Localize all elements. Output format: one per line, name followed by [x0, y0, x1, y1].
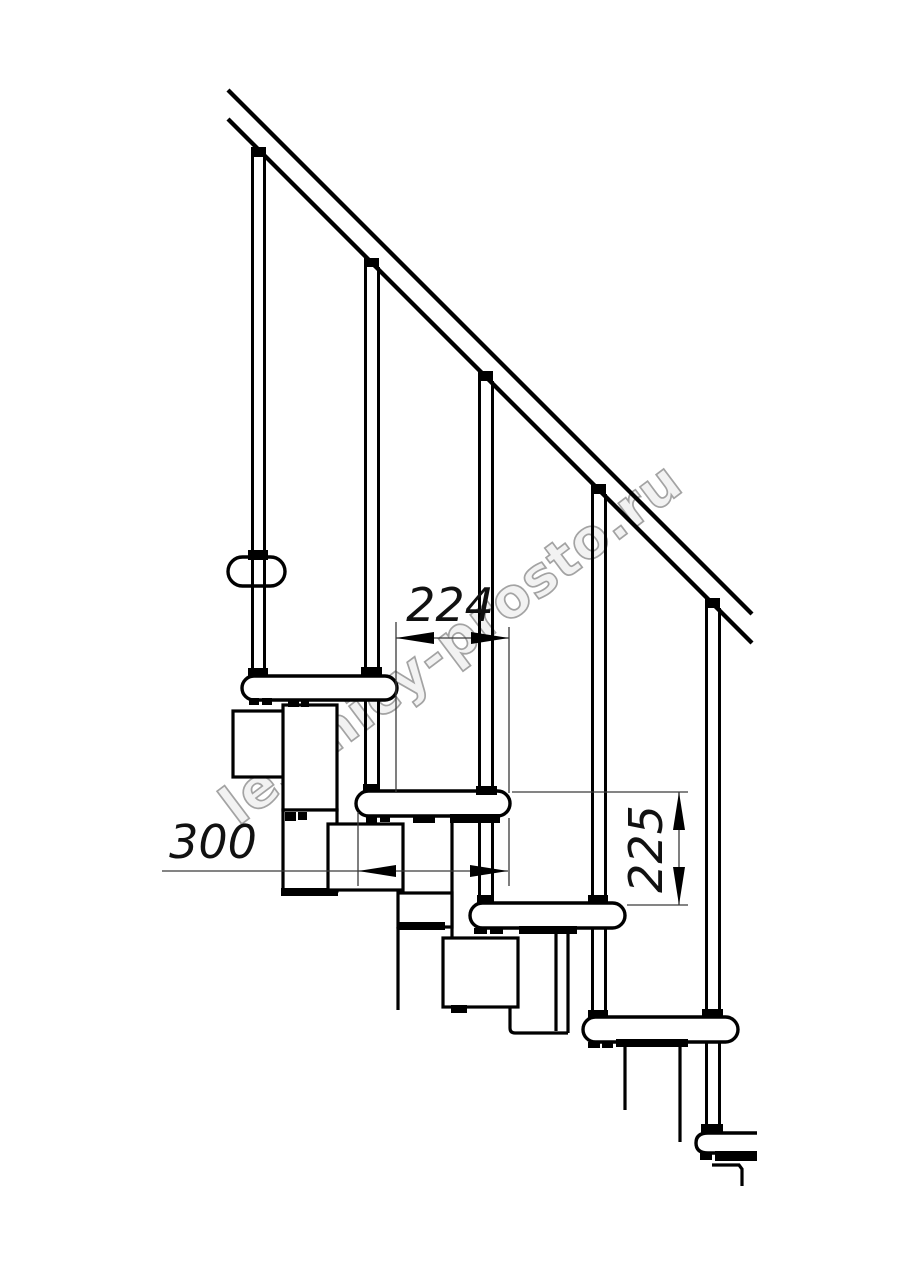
- staircase-elevation-drawing: lestnicy-prosto.ru: [0, 0, 914, 1280]
- support-modules: [233, 705, 742, 1186]
- watermark-text: lestnicy-prosto.ru: [208, 449, 694, 837]
- base-cap-1: [248, 668, 268, 677]
- drawing-canvas: lestnicy-prosto.ru: [0, 0, 914, 1280]
- handrail: [228, 90, 752, 643]
- base-cap-2: [363, 784, 380, 792]
- foot: [413, 816, 435, 823]
- watermark: lestnicy-prosto.ru: [208, 449, 694, 837]
- foot: [262, 698, 272, 705]
- pass-cap-2: [361, 667, 382, 677]
- foot: [490, 928, 503, 934]
- module-2: [328, 824, 403, 890]
- tread-3-shadow: [519, 926, 577, 934]
- baluster-1: [253, 157, 265, 676]
- tread-4-shadow: [616, 1039, 688, 1047]
- dimension-riser-height: 225: [512, 792, 688, 905]
- collar-cap: [248, 550, 268, 560]
- module-zigzag-link: [510, 1007, 568, 1033]
- module-3-base-strip: [451, 1005, 467, 1013]
- tread-5-partial: [696, 1133, 757, 1153]
- foot: [474, 928, 487, 934]
- tread-3: [470, 903, 625, 928]
- collar: [228, 557, 285, 586]
- tread-1: [242, 676, 397, 700]
- foot: [298, 812, 307, 820]
- foot: [301, 700, 309, 707]
- connectors: [248, 147, 757, 1161]
- module-connector-1-strip: [398, 922, 445, 930]
- foot: [288, 699, 299, 707]
- handrail-bottom-line: [228, 119, 752, 643]
- foot: [380, 816, 390, 822]
- arrow-down: [673, 867, 685, 905]
- pass-cap-4: [588, 895, 608, 904]
- tread-5-shadow: [715, 1151, 757, 1161]
- arrow-right: [470, 865, 508, 877]
- upper-tread-collar: [228, 557, 285, 586]
- foot: [588, 1042, 600, 1048]
- pass-cap-3: [476, 786, 497, 795]
- floor-break-line: [712, 1165, 742, 1186]
- dimension-label-224: 224: [406, 578, 494, 632]
- tread-2-shadow: [450, 814, 500, 823]
- module-end-view: [233, 711, 284, 777]
- dimension-label-225: 225: [619, 805, 673, 893]
- pass-cap-5: [702, 1009, 723, 1018]
- foot: [285, 812, 296, 821]
- arrow-up: [673, 792, 685, 830]
- foot: [366, 816, 377, 823]
- baluster-5: [707, 608, 720, 1126]
- dimension-label-300: 300: [169, 815, 257, 869]
- foot: [602, 1042, 613, 1048]
- foot: [700, 1152, 712, 1160]
- module-1: [283, 705, 337, 810]
- module-3: [443, 938, 518, 1007]
- handrail-top-line: [228, 90, 752, 614]
- base-cap-4: [588, 1010, 608, 1018]
- foot: [249, 698, 259, 705]
- base-cap-5: [701, 1124, 723, 1133]
- module-connector-1: [398, 893, 452, 927]
- base-cap-3: [477, 895, 494, 903]
- tread-4: [583, 1017, 738, 1042]
